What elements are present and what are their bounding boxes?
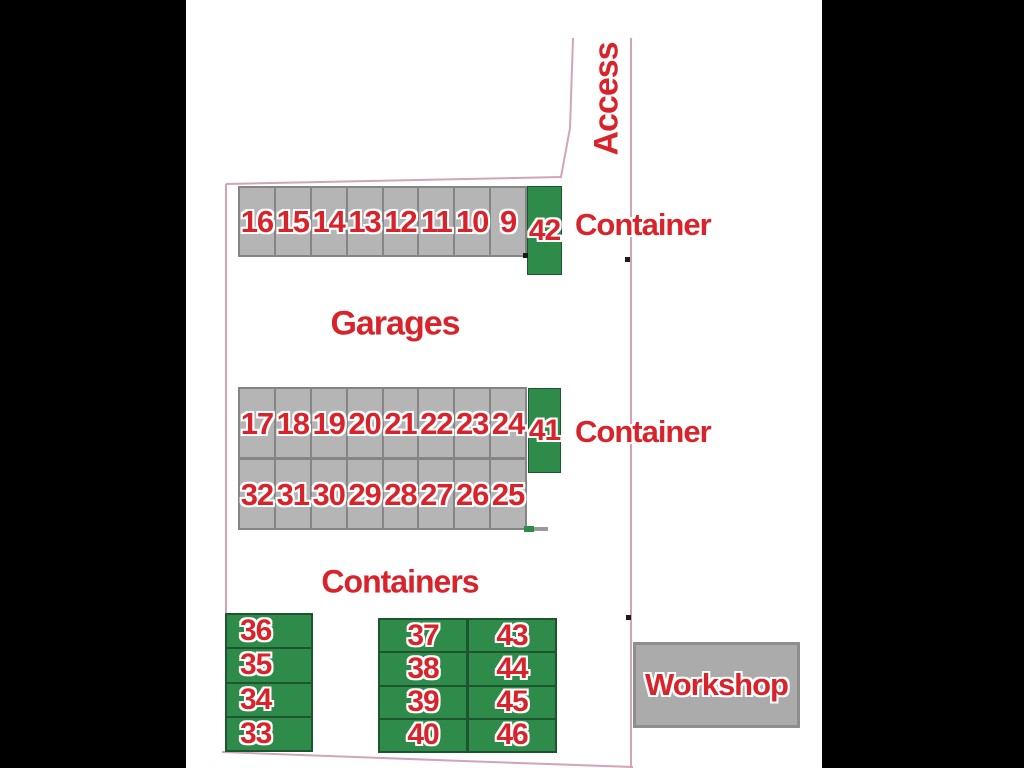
- garage-number: 30: [312, 479, 344, 510]
- container-number: 36: [240, 616, 271, 646]
- garage-cell-25: 25: [491, 460, 525, 528]
- container-cell-40: 40: [380, 720, 466, 751]
- garage-cell-19: 19: [312, 389, 346, 457]
- garage-cell-10: 10: [455, 188, 489, 255]
- container-cell-39: 39: [380, 687, 466, 718]
- garage-cell-28: 28: [384, 460, 418, 528]
- survey-dot: [523, 253, 528, 258]
- container-number: 39: [407, 687, 438, 717]
- garage-number: 31: [277, 479, 309, 510]
- garage-cell-27: 27: [419, 460, 453, 528]
- garage-cell-20: 20: [348, 389, 382, 457]
- access-road-label: Access: [588, 42, 627, 155]
- container-number: 43: [496, 621, 527, 651]
- container-42: 42: [527, 186, 562, 275]
- garage-cell-29: 29: [348, 460, 382, 528]
- garage-block-17-32: 17 18 19 20 21 22 23 24 32 31 30 29 28 2…: [238, 387, 527, 530]
- container-cell-33: 33: [227, 718, 311, 750]
- garage-number: 25: [492, 479, 524, 510]
- garage-cell-16: 16: [240, 188, 274, 255]
- garage-cell-24: 24: [491, 389, 525, 457]
- garage-cell-15: 15: [276, 188, 310, 255]
- container-label-mid: Container: [575, 414, 711, 450]
- garage-number: 18: [277, 408, 309, 439]
- garage-cell-32: 32: [240, 460, 274, 528]
- grey-fragment: [534, 527, 548, 531]
- container-number: 45: [496, 687, 527, 717]
- garage-number: 23: [456, 408, 488, 439]
- garage-number: 14: [312, 206, 344, 237]
- garage-number: 21: [384, 408, 416, 439]
- container-grid-37-46: 37 43 38 44 39 45 40 46: [378, 618, 557, 753]
- container-cell-46: 46: [469, 720, 555, 751]
- garage-number: 27: [420, 479, 452, 510]
- garage-cell-31: 31: [276, 460, 310, 528]
- garage-cell-23: 23: [455, 389, 489, 457]
- site-plan-image: Access 16 15 14 13 12 11 10 9 42 Contain…: [0, 0, 1024, 768]
- containers-heading: Containers: [321, 564, 478, 601]
- container-number: 41: [529, 416, 560, 446]
- container-41: 41: [528, 388, 561, 473]
- container-number: 44: [496, 654, 527, 684]
- container-number: 37: [407, 621, 438, 651]
- garage-cell-11: 11: [419, 188, 453, 255]
- container-number: 34: [240, 685, 271, 715]
- container-number: 35: [240, 650, 271, 680]
- container-number: 42: [529, 216, 560, 246]
- garage-number: 17: [241, 408, 273, 439]
- garage-number: 19: [312, 408, 344, 439]
- garages-heading: Garages: [330, 305, 459, 344]
- plan-content: Access 16 15 14 13 12 11 10 9 42 Contain…: [186, 0, 822, 768]
- garage-number: 32: [241, 479, 273, 510]
- garage-number: 28: [384, 479, 416, 510]
- garage-number: 11: [421, 206, 452, 237]
- container-cell-44: 44: [469, 653, 555, 684]
- container-number: 38: [407, 654, 438, 684]
- garage-cell-14: 14: [312, 188, 346, 255]
- garage-cell-17: 17: [240, 389, 274, 457]
- garage-number: 24: [492, 408, 524, 439]
- survey-dot: [625, 257, 630, 262]
- container-cell-36: 36: [227, 615, 311, 647]
- garage-number: 29: [348, 479, 380, 510]
- garage-number: 20: [348, 408, 380, 439]
- garage-cell-22: 22: [419, 389, 453, 457]
- garage-number: 12: [384, 206, 416, 237]
- container-cell-43: 43: [469, 620, 555, 651]
- garage-number: 9: [500, 206, 516, 237]
- garage-number: 10: [456, 206, 488, 237]
- garage-cell-26: 26: [455, 460, 489, 528]
- green-fragment: [524, 526, 534, 532]
- container-cell-37: 37: [380, 620, 466, 651]
- garage-cell-21: 21: [384, 389, 418, 457]
- garage-number: 15: [277, 206, 309, 237]
- garage-cell-30: 30: [312, 460, 346, 528]
- container-number: 40: [407, 720, 438, 750]
- container-cell-34: 34: [227, 684, 311, 716]
- garage-number: 22: [420, 408, 452, 439]
- garage-number: 16: [241, 206, 273, 237]
- garage-cell-12: 12: [384, 188, 418, 255]
- container-label-top: Container: [575, 207, 711, 243]
- container-cell-38: 38: [380, 653, 466, 684]
- container-number: 33: [240, 719, 271, 749]
- workshop-building: Workshop: [633, 642, 800, 728]
- container-number: 46: [496, 720, 527, 750]
- container-column-33-36: 36 35 34 33: [225, 613, 313, 752]
- survey-dot: [626, 615, 631, 620]
- garage-strip-9-16: 16 15 14 13 12 11 10 9: [238, 186, 527, 257]
- garage-cell-13: 13: [348, 188, 382, 255]
- container-cell-45: 45: [469, 687, 555, 718]
- garage-number: 26: [456, 479, 488, 510]
- garage-number: 13: [348, 206, 380, 237]
- garage-cell-9: 9: [491, 188, 525, 255]
- workshop-label: Workshop: [645, 667, 788, 703]
- container-cell-35: 35: [227, 649, 311, 681]
- garage-cell-18: 18: [276, 389, 310, 457]
